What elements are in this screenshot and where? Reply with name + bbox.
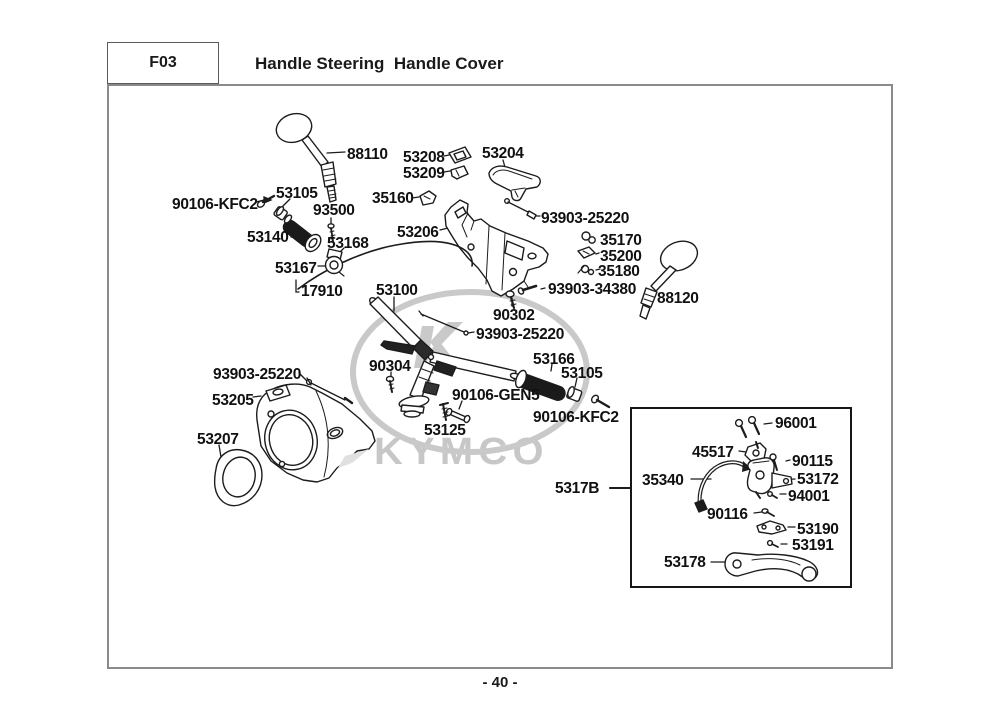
page-title: Handle Steering Handle Cover: [255, 54, 503, 74]
part-label-53204: 53204: [482, 145, 524, 163]
section-code-box: F03: [107, 42, 219, 84]
part-label-53207: 53207: [197, 431, 239, 449]
part-label-93903-25220: 93903-25220: [541, 210, 629, 228]
part-label-53178: 53178: [664, 554, 706, 572]
section-code: F03: [149, 54, 177, 72]
part-label-53167: 53167: [275, 260, 317, 278]
part-labels-layer: 8811053208532095320490106-KFC25310593500…: [0, 0, 1000, 707]
part-label-90115: 90115: [792, 453, 833, 471]
part-label-93903-34380: 93903-34380: [548, 281, 636, 299]
part-label-53206: 53206: [397, 224, 439, 242]
part-label-17910: 17910: [301, 283, 343, 301]
part-label-90304: 90304: [369, 358, 411, 376]
part-label-53172: 53172: [797, 471, 839, 489]
part-label-93903-25220: 93903-25220: [476, 326, 564, 344]
part-label-94001: 94001: [788, 488, 830, 506]
part-label-53140: 53140: [247, 229, 289, 247]
part-label-90106-KFC2: 90106-KFC2: [533, 409, 619, 427]
part-label-90106-KFC2: 90106-KFC2: [172, 196, 258, 214]
part-label-5317B: 5317B: [555, 480, 599, 498]
part-label-53168: 53168: [327, 235, 369, 253]
part-label-45517: 45517: [692, 444, 734, 462]
part-label-53205: 53205: [212, 392, 254, 410]
part-label-53125: 53125: [424, 422, 466, 440]
part-label-53191: 53191: [792, 537, 834, 555]
part-label-90106-GEN5: 90106-GEN5: [452, 387, 539, 405]
part-label-35180: 35180: [598, 263, 640, 281]
part-label-53209: 53209: [403, 165, 445, 183]
part-label-93500: 93500: [313, 202, 355, 220]
part-label-35340: 35340: [642, 472, 684, 490]
part-label-53105: 53105: [561, 365, 603, 383]
part-label-93903-25220: 93903-25220: [213, 366, 301, 384]
part-label-96001: 96001: [775, 415, 817, 433]
part-label-90116: 90116: [707, 506, 748, 524]
part-label-53105: 53105: [276, 185, 318, 203]
page-number: - 40 -: [0, 674, 1000, 691]
part-label-35160: 35160: [372, 190, 414, 208]
part-label-88120: 88120: [657, 290, 699, 308]
part-label-53100: 53100: [376, 282, 418, 300]
part-label-90302: 90302: [493, 307, 535, 325]
part-label-88110: 88110: [347, 146, 388, 164]
catalog-page: F03 Handle Steering Handle Cover KYMCO: [0, 0, 1000, 707]
